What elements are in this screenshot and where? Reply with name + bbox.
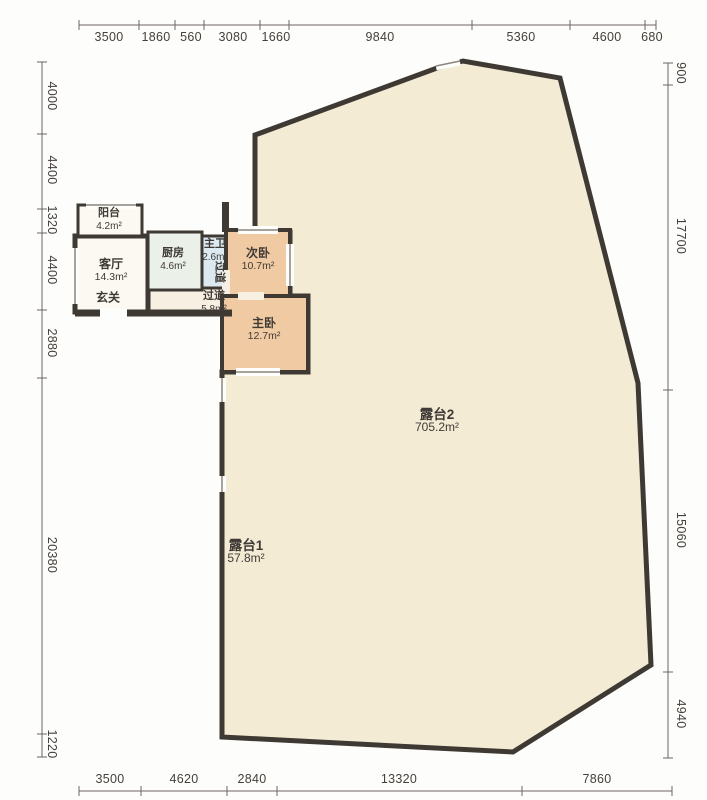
- room-area: 57.8m²: [227, 552, 264, 565]
- dim-left-20380: 20380: [45, 529, 59, 581]
- dim-bottom-4620: 4620: [158, 772, 210, 786]
- room-area: 10.7m²: [242, 260, 275, 273]
- room-area: 4.6m²: [160, 260, 186, 273]
- dim-top-3500: 3500: [83, 30, 135, 44]
- room-area: 14.3m²: [95, 271, 128, 284]
- dim-right-15060: 15060: [674, 504, 688, 556]
- room-name: 阳台: [96, 207, 122, 220]
- dim-top-1660: 1660: [250, 30, 302, 44]
- dim-bottom-7860: 7860: [571, 772, 623, 786]
- room-label-living: 客厅 14.3m²: [95, 258, 128, 284]
- room-area: 5.8m²: [201, 303, 227, 316]
- room-name: 次卧: [242, 247, 275, 260]
- room-label-balcony: 阳台 4.2m²: [96, 207, 122, 233]
- room-label-hallway: 过道 5.8m²: [201, 290, 227, 316]
- dim-right-17700: 17700: [674, 210, 688, 262]
- room-label-hallway-rotated: 过道: [213, 261, 226, 283]
- floor-plan-drawing: [0, 0, 707, 800]
- wall-stub: [222, 202, 229, 232]
- dim-left-4400a: 4400: [45, 144, 59, 196]
- master-bedroom-door-gap: [238, 292, 264, 300]
- dim-left-4000: 4000: [45, 70, 59, 122]
- room-label-bedroom2: 次卧 10.7m²: [242, 247, 275, 273]
- dim-right-900: 900: [674, 47, 688, 99]
- dim-bottom-13320: 13320: [373, 772, 425, 786]
- room-label-foyer: 玄关: [96, 292, 120, 305]
- dim-bottom-3500: 3500: [84, 772, 136, 786]
- dim-left-2880: 2880: [45, 317, 59, 369]
- dim-top-5360: 5360: [495, 30, 547, 44]
- room-label-terrace2: 露台2 705.2m²: [415, 408, 459, 434]
- dim-bottom-2840: 2840: [226, 772, 278, 786]
- room-name: 过道: [201, 290, 227, 303]
- dim-top-680: 680: [626, 30, 678, 44]
- floor-plan-canvas: 3500 1860 560 3080 1660 9840 5360 4600 6…: [0, 0, 707, 800]
- room-name: 主卧: [248, 317, 281, 330]
- dim-right-4940: 4940: [674, 688, 688, 740]
- room-label-terrace1: 露台1 57.8m²: [227, 539, 264, 565]
- dim-left-1320: 1320: [45, 194, 59, 246]
- room-name: 主卫: [202, 238, 228, 251]
- entry-door-gap: [100, 308, 127, 318]
- room-area: 4.2m²: [96, 220, 122, 233]
- room-label-master-bedroom: 主卧 12.7m²: [248, 317, 281, 343]
- dim-left-4400b: 4400: [45, 244, 59, 296]
- room-name: 厨房: [160, 247, 186, 260]
- room-name: 客厅: [95, 258, 128, 271]
- dim-left-1220: 1220: [45, 718, 59, 770]
- dim-top-9840: 9840: [354, 30, 406, 44]
- room-area: 12.7m²: [248, 330, 281, 343]
- room-label-kitchen: 厨房 4.6m²: [160, 247, 186, 273]
- room-area: 705.2m²: [415, 421, 459, 434]
- room-name: 玄关: [96, 292, 120, 305]
- room-name: 过道: [213, 261, 226, 283]
